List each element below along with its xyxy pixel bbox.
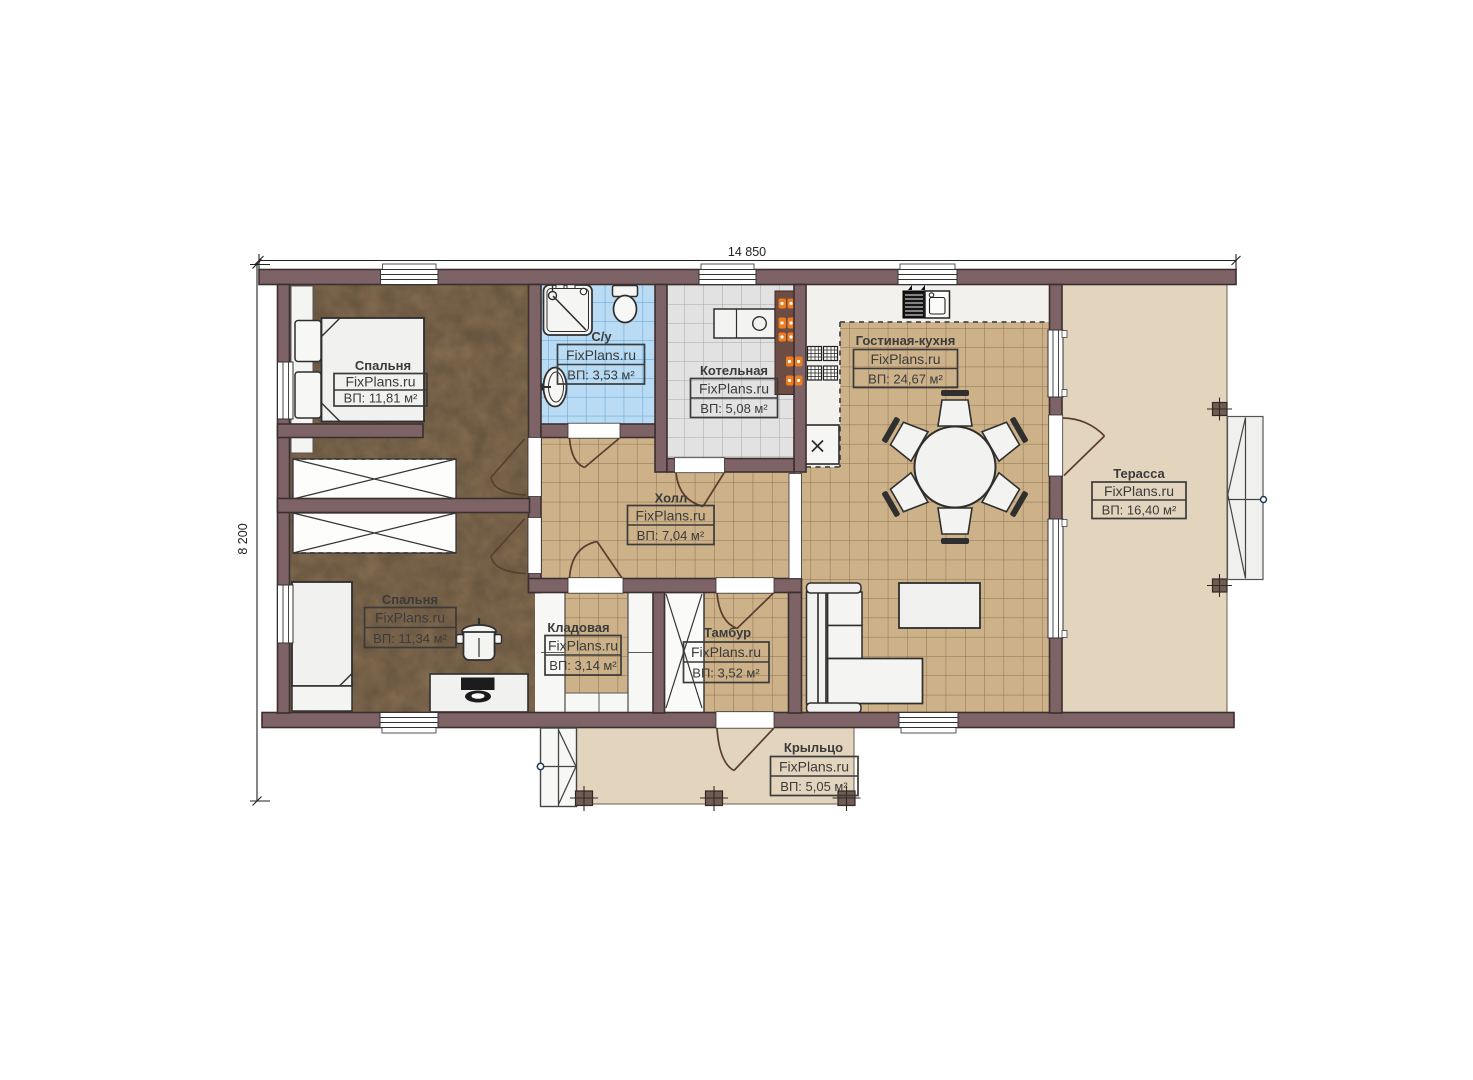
svg-text:FixPlans.ru: FixPlans.ru [779,759,849,775]
svg-text:ВП: 16,40 м²: ВП: 16,40 м² [1102,503,1177,518]
svg-text:Тамбур: Тамбур [704,625,751,640]
svg-text:Холл: Холл [655,491,688,506]
svg-text:FixPlans.ru: FixPlans.ru [870,351,940,367]
svg-text:Кладовая: Кладовая [547,620,609,635]
svg-text:ВП: 5,05 м²: ВП: 5,05 м² [780,779,848,794]
svg-text:FixPlans.ru: FixPlans.ru [1104,483,1174,499]
svg-text:ВП: 3,52 м²: ВП: 3,52 м² [692,666,760,681]
svg-text:Гостиная-кухня: Гостиная-кухня [856,333,956,348]
svg-text:FixPlans.ru: FixPlans.ru [548,638,618,654]
svg-text:ВП: 7,04 м²: ВП: 7,04 м² [637,528,705,543]
svg-text:FixPlans.ru: FixPlans.ru [375,610,445,626]
svg-text:FixPlans.ru: FixPlans.ru [635,508,705,524]
svg-text:FixPlans.ru: FixPlans.ru [691,644,761,660]
svg-text:FixPlans.ru: FixPlans.ru [699,381,769,397]
svg-text:ВП: 11,81 м²: ВП: 11,81 м² [344,391,418,406]
svg-text:Крыльцо: Крыльцо [784,740,843,755]
svg-text:FixPlans.ru: FixPlans.ru [566,347,636,363]
svg-text:ВП: 24,67 м²: ВП: 24,67 м² [868,372,943,387]
svg-text:Котельная: Котельная [700,363,768,378]
svg-text:14 850: 14 850 [728,245,766,259]
svg-text:Спальня: Спальня [355,358,411,373]
svg-text:FixPlans.ru: FixPlans.ru [345,374,415,390]
svg-text:Спальня: Спальня [382,592,438,607]
svg-text:ВП: 11,34 м²: ВП: 11,34 м² [373,631,447,646]
svg-text:Терасса: Терасса [1113,466,1165,481]
svg-text:ВП: 3,14 м²: ВП: 3,14 м² [549,658,617,673]
svg-text:ВП: 3,53 м²: ВП: 3,53 м² [567,368,635,383]
svg-text:ВП: 5,08 м²: ВП: 5,08 м² [700,401,768,416]
svg-text:8 200: 8 200 [236,523,250,554]
svg-text:С/у: С/у [591,329,612,344]
